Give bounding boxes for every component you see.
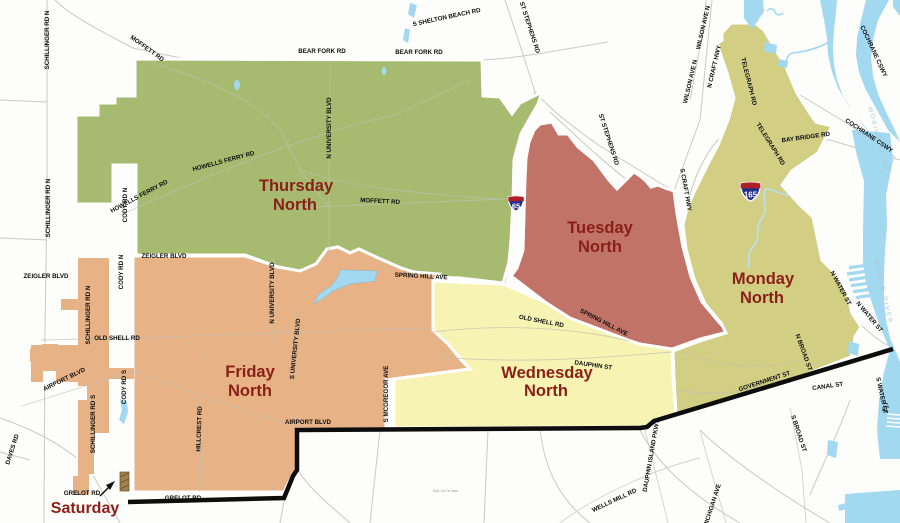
svg-text:SCHILLINGER RD N: SCHILLINGER RD N (45, 178, 52, 237)
svg-text:165: 165 (744, 191, 758, 200)
svg-text:N UNIVERSITY BLVD: N UNIVERSITY BLVD (326, 97, 333, 159)
svg-text:GRELOT RD: GRELOT RD (165, 495, 202, 502)
svg-text:SCHILLINGER RD S: SCHILLINGER RD S (90, 395, 97, 453)
svg-text:ZEIGLER BLVD: ZEIGLER BLVD (24, 273, 69, 280)
svg-text:CODY RD N: CODY RD N (122, 187, 129, 222)
svg-text:S MCGREGOR AVE: S MCGREGOR AVE (383, 366, 390, 423)
svg-text:OLD SHELL RD: OLD SHELL RD (94, 335, 140, 342)
svg-text:North: North (578, 238, 622, 256)
svg-text:GRELOT RD: GRELOT RD (64, 490, 101, 497)
svg-text:Friday: Friday (225, 363, 275, 381)
svg-text:CODY RD S: CODY RD S (121, 370, 128, 404)
svg-text:AIRPORT BLVD: AIRPORT BLVD (285, 419, 331, 426)
svg-text:BEAR FORK RD: BEAR FORK RD (298, 48, 346, 55)
svg-text:North: North (228, 382, 272, 400)
svg-text:North: North (273, 196, 317, 214)
svg-text:Tuesday: Tuesday (567, 219, 634, 237)
svg-text:Wednesday: Wednesday (501, 364, 593, 382)
svg-text:N UNIVERSITY BLVD: N UNIVERSITY BLVD (269, 262, 276, 324)
svg-text:SCHILLINGER RD N: SCHILLINGER RD N (44, 10, 51, 69)
svg-text:SCHILLINGER RD N: SCHILLINGER RD N (85, 285, 92, 344)
svg-text:65: 65 (512, 202, 520, 211)
svg-text:Saturday: Saturday (51, 500, 120, 517)
svg-text:North: North (740, 289, 784, 307)
svg-text:Trail-1417b data: Trail-1417b data (432, 489, 457, 493)
svg-text:Thursday: Thursday (259, 177, 334, 195)
svg-text:North: North (524, 382, 568, 400)
svg-text:Monday: Monday (732, 270, 795, 288)
svg-text:CODY RD N: CODY RD N (118, 254, 125, 289)
svg-text:BEAR FORK RD: BEAR FORK RD (395, 49, 443, 56)
svg-text:ZEIGLER BLVD: ZEIGLER BLVD (142, 253, 187, 260)
